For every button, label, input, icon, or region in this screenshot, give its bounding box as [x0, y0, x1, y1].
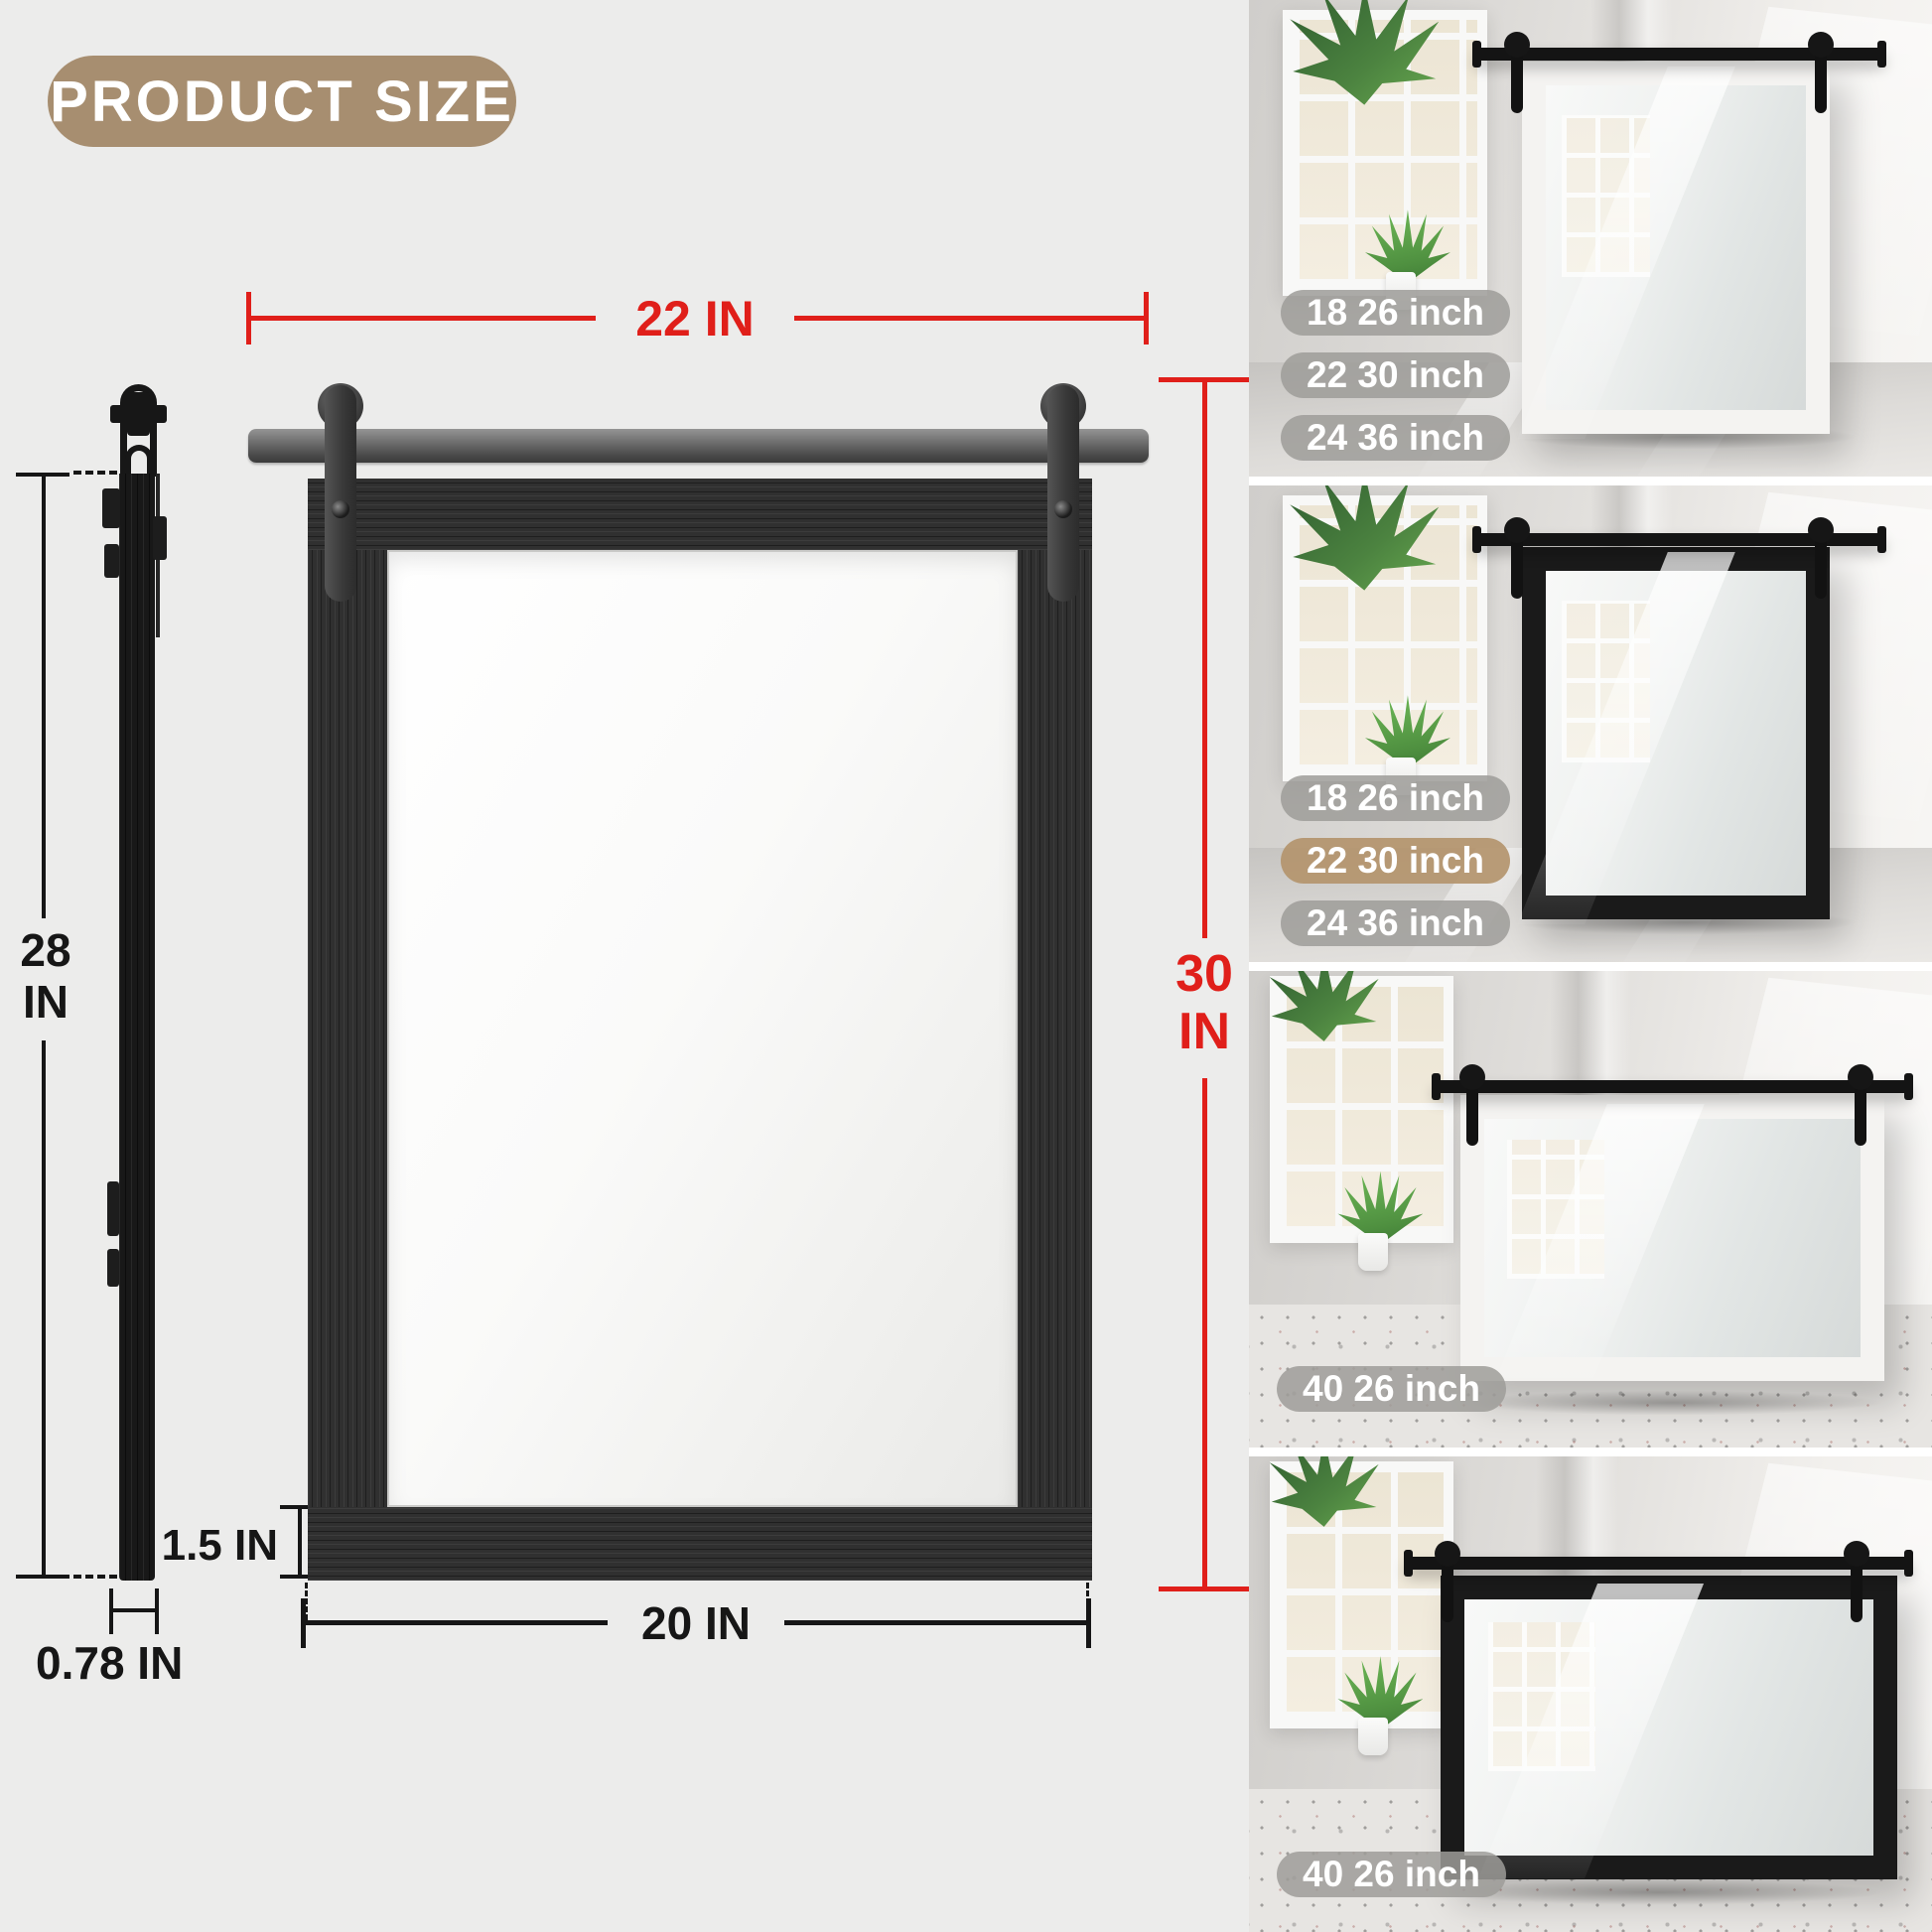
size-option-pill: 24 36 inch — [1281, 415, 1510, 461]
mirror — [1522, 62, 1829, 433]
dim-20-line-left — [305, 1620, 608, 1625]
barn-rail — [1474, 533, 1884, 546]
frame-bottom-band — [308, 1507, 1092, 1581]
rail-end-stop-icon — [1404, 1550, 1413, 1577]
dim-28-bottom-tick — [16, 1575, 69, 1579]
left-hanger-strap — [325, 385, 356, 602]
size-option-pill: 22 30 inch — [1281, 352, 1510, 398]
mirror-frame-front-view — [308, 479, 1092, 1581]
hanger-strap-icon — [1511, 521, 1523, 599]
mirror — [1441, 1576, 1898, 1880]
bolt-icon — [332, 500, 349, 518]
size-option-pill: 18 26 inch — [1281, 290, 1510, 336]
size-option-pill: 18 26 inch — [1281, 775, 1510, 821]
bolt-icon — [1054, 500, 1072, 518]
product-size-infographic: PRODUCT SIZE 22 IN 16 IN 23.6 IN 30 IN — [0, 0, 1932, 1932]
dim-20-line-right — [784, 1620, 1088, 1625]
right-hanger-strap — [1047, 385, 1079, 602]
side-view-clip-icon — [102, 488, 120, 528]
hanger-strap-icon — [1815, 36, 1827, 113]
dim-28-unit: IN — [8, 977, 83, 1029]
dim-30-line-top — [1202, 380, 1207, 938]
dim-28-value: 28 — [8, 925, 83, 977]
hanger-strap-icon — [1442, 1545, 1453, 1622]
mirror-side-view — [119, 474, 155, 1581]
product-size-badge: PRODUCT SIZE — [48, 56, 516, 147]
dim-15-label: 1.5 IN — [149, 1521, 278, 1571]
barn-rail — [1406, 1557, 1911, 1570]
dim-28-line-bottom — [42, 1040, 46, 1577]
dim-20-label: 20 IN — [608, 1596, 784, 1650]
dim-22-label: 22 IN — [596, 290, 794, 347]
side-view-clip-icon — [107, 1181, 119, 1236]
dim-28-top-dash — [73, 471, 117, 475]
rail-end-stop-icon — [1904, 1073, 1913, 1100]
hanger-strap-icon — [1851, 1545, 1863, 1622]
barn-rail — [1474, 48, 1884, 61]
plant-pot-icon — [1358, 1718, 1388, 1755]
mirror-glass — [387, 550, 1018, 1507]
dim-28-label: 28 IN — [8, 925, 83, 1028]
mirror-shadow — [1453, 1390, 1890, 1416]
hanger-strap-icon — [1466, 1068, 1478, 1146]
size-option-pill: 24 36 inch — [1281, 900, 1510, 946]
frame-right-band — [1018, 479, 1092, 1581]
rail-end-stop-icon — [1877, 41, 1886, 68]
mirror — [1522, 547, 1829, 918]
side-view-axle-pin-icon — [127, 392, 150, 436]
mirror — [1460, 1095, 1883, 1381]
rail-end-stop-icon — [1472, 526, 1481, 553]
size-option-pill-selected: 22 30 inch — [1281, 838, 1510, 884]
dim-30-bottom-tick — [1159, 1587, 1250, 1591]
photo-white-portrait-mirror: 18 26 inch 22 30 inch 24 36 inch — [1249, 0, 1932, 477]
plant-pot-icon — [1358, 1233, 1388, 1271]
barn-door-rail — [248, 429, 1149, 463]
side-view-clip-icon — [107, 1249, 119, 1287]
frame-left-band — [308, 479, 387, 1581]
frame-top-band — [308, 479, 1092, 550]
dim-15-line — [298, 1507, 302, 1579]
side-view-clip-icon — [153, 516, 167, 560]
hanger-strap-icon — [1511, 36, 1523, 113]
dim-22-line-right — [794, 316, 1147, 321]
dim-078-label: 0.78 IN — [36, 1636, 244, 1690]
size-option-pill: 40 26 inch — [1277, 1366, 1506, 1412]
rail-end-stop-icon — [1472, 41, 1481, 68]
dim-30-line-bottom — [1202, 1078, 1207, 1588]
hanger-strap-icon — [1855, 1068, 1866, 1146]
dim-28-line-top — [42, 476, 46, 918]
photo-black-portrait-mirror: 18 26 inch 22 30 inch 24 36 inch — [1249, 485, 1932, 962]
hanger-strap-icon — [1815, 521, 1827, 599]
photo-black-landscape-mirror: 40 26 inch — [1249, 1456, 1932, 1932]
dim-078-line — [111, 1608, 159, 1612]
dim-28-bottom-dash — [73, 1575, 117, 1579]
rail-end-stop-icon — [1904, 1550, 1913, 1577]
photo-white-landscape-mirror: 40 26 inch — [1249, 971, 1932, 1448]
barn-rail — [1434, 1080, 1912, 1093]
dim-22-line-left — [248, 316, 596, 321]
size-option-pill: 40 26 inch — [1277, 1852, 1506, 1897]
side-view-clip-icon — [104, 544, 119, 578]
rail-end-stop-icon — [1432, 1073, 1441, 1100]
rail-end-stop-icon — [1877, 526, 1886, 553]
page-title: PRODUCT SIZE — [50, 69, 514, 135]
